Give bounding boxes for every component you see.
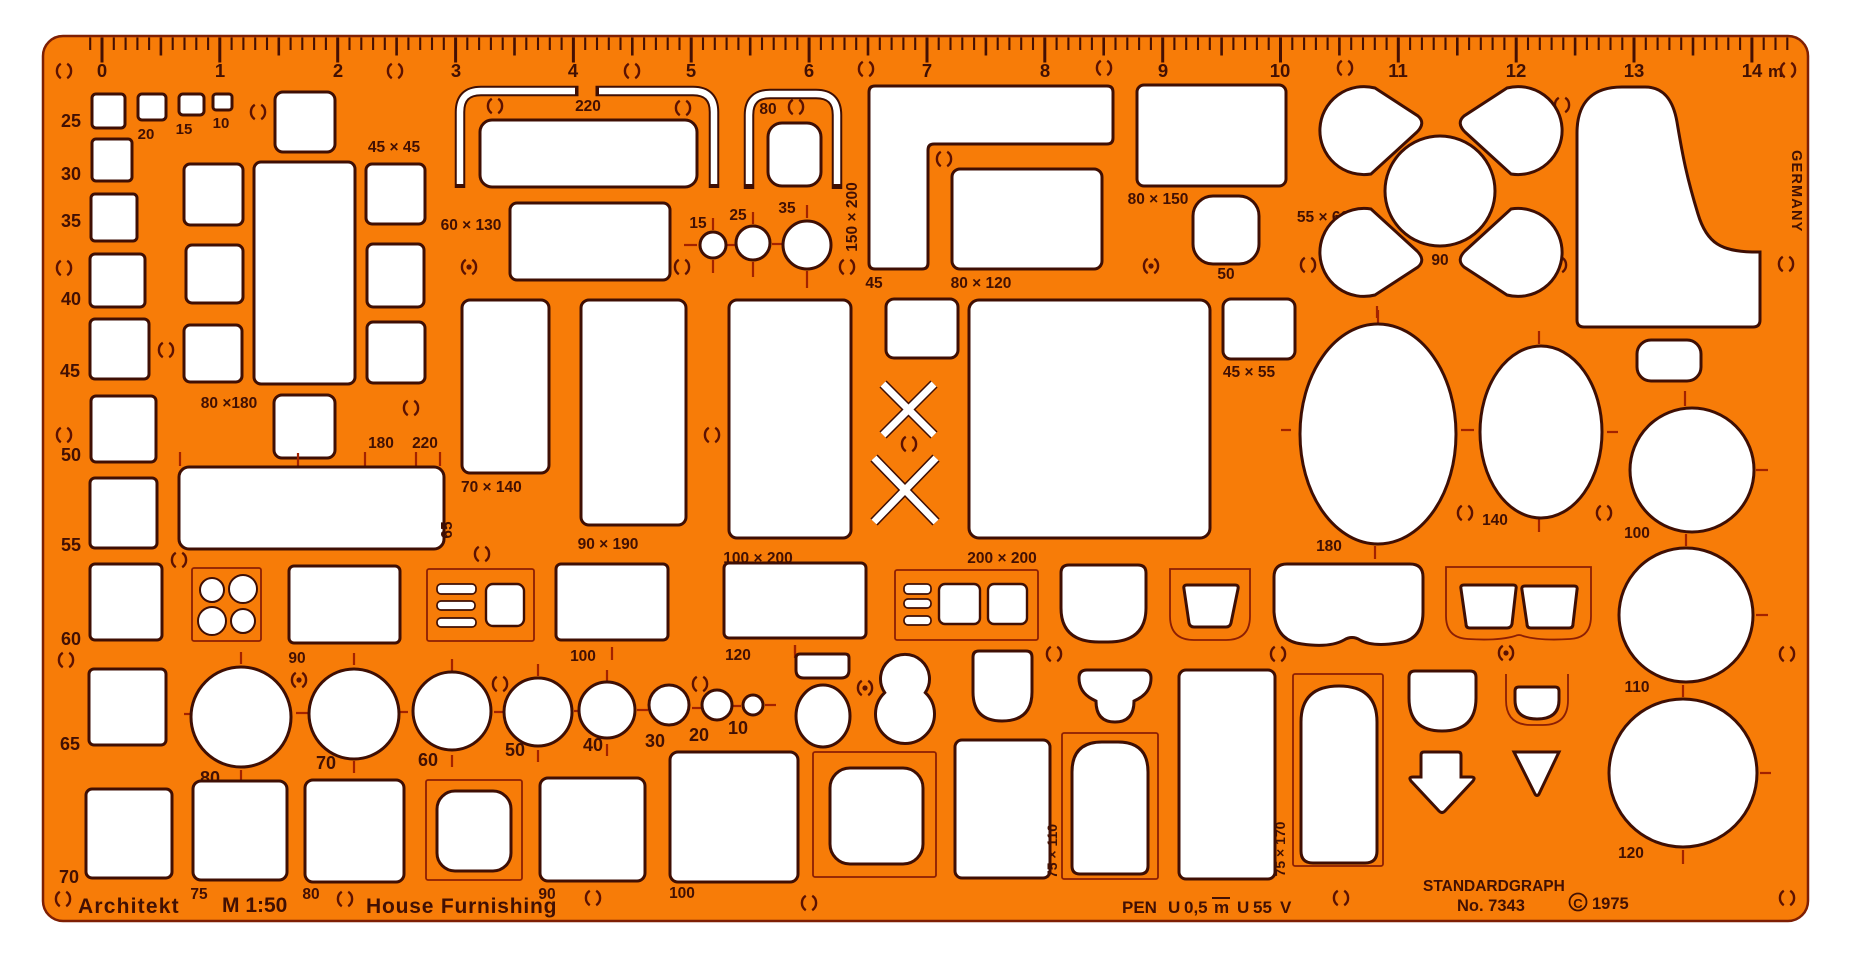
svg-text:2: 2 (333, 60, 343, 81)
svg-text:180: 180 (368, 435, 394, 452)
svg-text:20: 20 (689, 725, 709, 745)
svg-text:200 × 200: 200 × 200 (967, 550, 1036, 567)
svg-text:1: 1 (215, 60, 225, 81)
svg-text:80 × 150: 80 × 150 (1128, 191, 1189, 208)
svg-text:110: 110 (1624, 679, 1649, 696)
svg-text:35: 35 (778, 200, 796, 217)
svg-text:10: 10 (213, 115, 230, 132)
svg-text:U: U (1168, 898, 1180, 917)
svg-text:U: U (1237, 898, 1249, 917)
svg-text:75 × 170: 75 × 170 (1272, 821, 1288, 876)
svg-text:30: 30 (61, 164, 81, 184)
svg-text:80: 80 (302, 886, 319, 903)
svg-text:80 ×180: 80 ×180 (201, 395, 257, 412)
svg-text:60: 60 (418, 750, 438, 770)
svg-text:9: 9 (1158, 60, 1168, 81)
svg-text:Architekt: Architekt (78, 895, 180, 918)
svg-text:90: 90 (288, 650, 305, 667)
svg-text:65: 65 (60, 734, 80, 754)
svg-text:25: 25 (729, 207, 747, 224)
svg-text:45: 45 (60, 361, 80, 381)
svg-text:13: 13 (1624, 60, 1645, 81)
svg-text:120: 120 (725, 647, 751, 664)
svg-text:100: 100 (1624, 525, 1650, 542)
svg-text:7: 7 (922, 60, 932, 81)
svg-text:180: 180 (1316, 538, 1342, 555)
svg-text:40: 40 (583, 735, 603, 755)
svg-text:65: 65 (439, 521, 456, 539)
svg-text:12: 12 (1506, 60, 1527, 81)
svg-text:35: 35 (61, 211, 81, 231)
svg-text:90 × 190: 90 × 190 (578, 536, 639, 553)
svg-text:0: 0 (97, 60, 107, 81)
svg-text:40: 40 (61, 289, 81, 309)
svg-text:120: 120 (1618, 845, 1644, 862)
svg-text:45 × 55: 45 × 55 (1223, 364, 1276, 381)
svg-text:8: 8 (1040, 60, 1050, 81)
svg-text:No. 7343: No. 7343 (1457, 897, 1525, 915)
svg-text:70 × 140: 70 × 140 (461, 479, 522, 496)
svg-text:70: 70 (316, 753, 336, 773)
svg-text:150 × 200: 150 × 200 (844, 182, 861, 251)
svg-text:4: 4 (568, 60, 579, 81)
svg-text:14: 14 (1742, 60, 1763, 81)
svg-text:10: 10 (1270, 60, 1291, 81)
svg-text:50: 50 (505, 740, 525, 760)
svg-text:M 1:50: M 1:50 (222, 894, 287, 917)
svg-text:6: 6 (804, 60, 814, 81)
svg-text:GERMANY: GERMANY (1788, 150, 1804, 233)
svg-text:50: 50 (61, 445, 81, 465)
svg-text:10: 10 (728, 718, 748, 738)
svg-text:75: 75 (190, 886, 208, 903)
svg-text:15: 15 (176, 121, 193, 138)
svg-text:V: V (1280, 898, 1292, 917)
svg-text:3: 3 (451, 60, 461, 81)
svg-text:m: m (1214, 898, 1229, 917)
svg-text:C: C (1573, 896, 1583, 911)
svg-text:140: 140 (1482, 512, 1508, 529)
svg-text:70: 70 (59, 867, 79, 887)
svg-text:STANDARDGRAPH: STANDARDGRAPH (1423, 878, 1565, 895)
svg-text:45: 45 (865, 275, 883, 292)
svg-text:30: 30 (645, 731, 665, 751)
svg-text:90: 90 (1431, 252, 1448, 269)
svg-text:80 × 120: 80 × 120 (951, 275, 1012, 292)
svg-text:House Furnishing: House Furnishing (366, 895, 557, 918)
svg-text:100: 100 (669, 885, 695, 902)
svg-text:100: 100 (570, 648, 596, 665)
svg-text:PEN: PEN (1122, 898, 1157, 917)
svg-text:75 × 110: 75 × 110 (1044, 824, 1060, 878)
svg-text:60 × 130: 60 × 130 (441, 217, 502, 234)
svg-text:55: 55 (61, 535, 81, 555)
svg-text:50: 50 (1217, 266, 1234, 283)
svg-text:5: 5 (686, 60, 696, 81)
svg-text:25: 25 (61, 111, 81, 131)
svg-text:15: 15 (689, 215, 707, 232)
svg-text:45 × 45: 45 × 45 (368, 139, 421, 156)
svg-text:80: 80 (759, 101, 776, 118)
svg-text:220: 220 (575, 98, 601, 115)
svg-text:0,5: 0,5 (1184, 898, 1208, 917)
svg-text:11: 11 (1388, 60, 1408, 81)
svg-text:55: 55 (1253, 898, 1272, 917)
svg-text:220: 220 (412, 435, 438, 452)
svg-text:20: 20 (138, 126, 155, 143)
svg-text:1975: 1975 (1592, 895, 1629, 913)
svg-text:60: 60 (61, 629, 81, 649)
